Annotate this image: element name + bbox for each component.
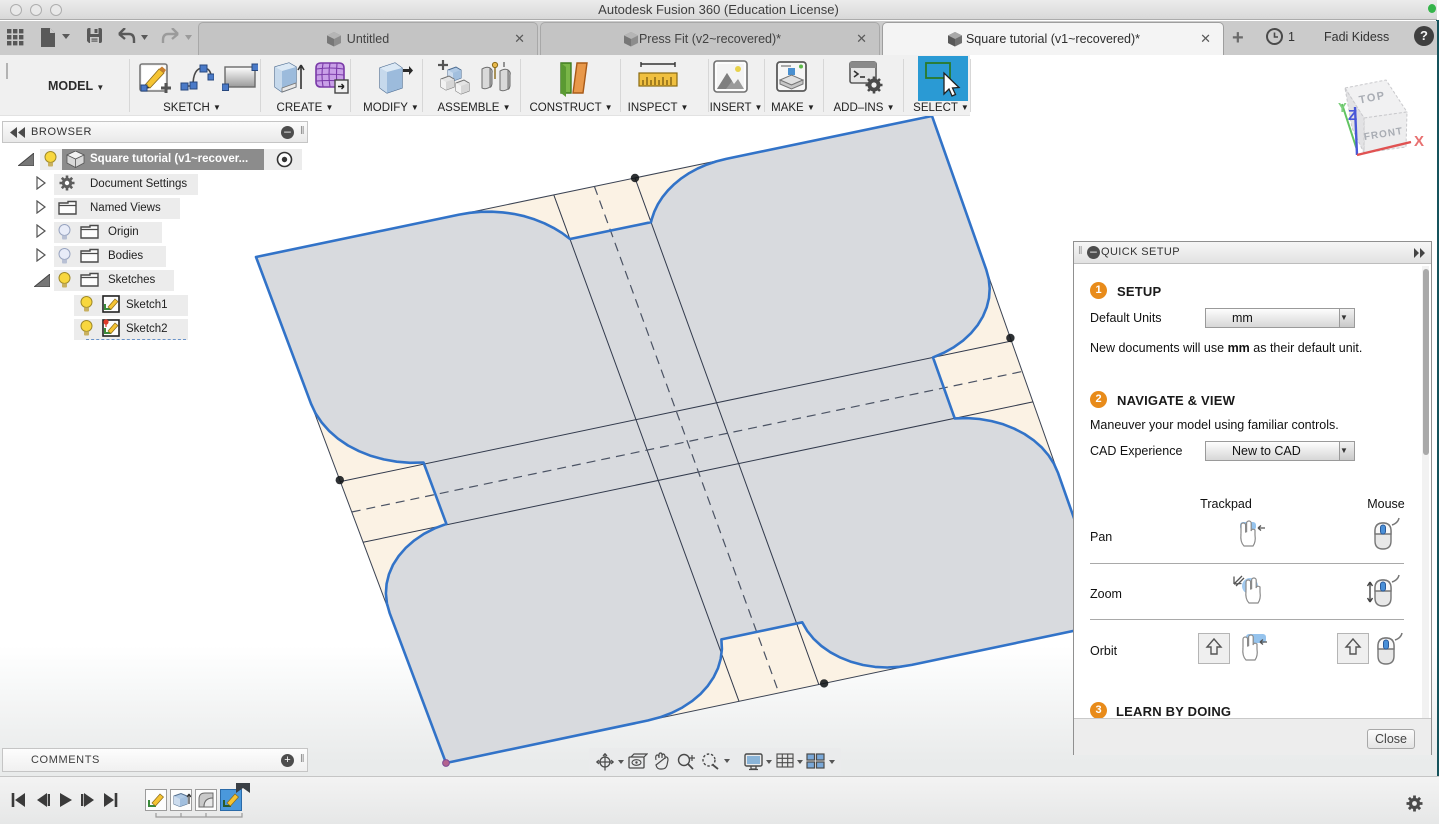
- svg-text:X: X: [1414, 133, 1424, 150]
- svg-text:Z: Z: [1348, 107, 1357, 124]
- svg-text:Y: Y: [1338, 100, 1347, 115]
